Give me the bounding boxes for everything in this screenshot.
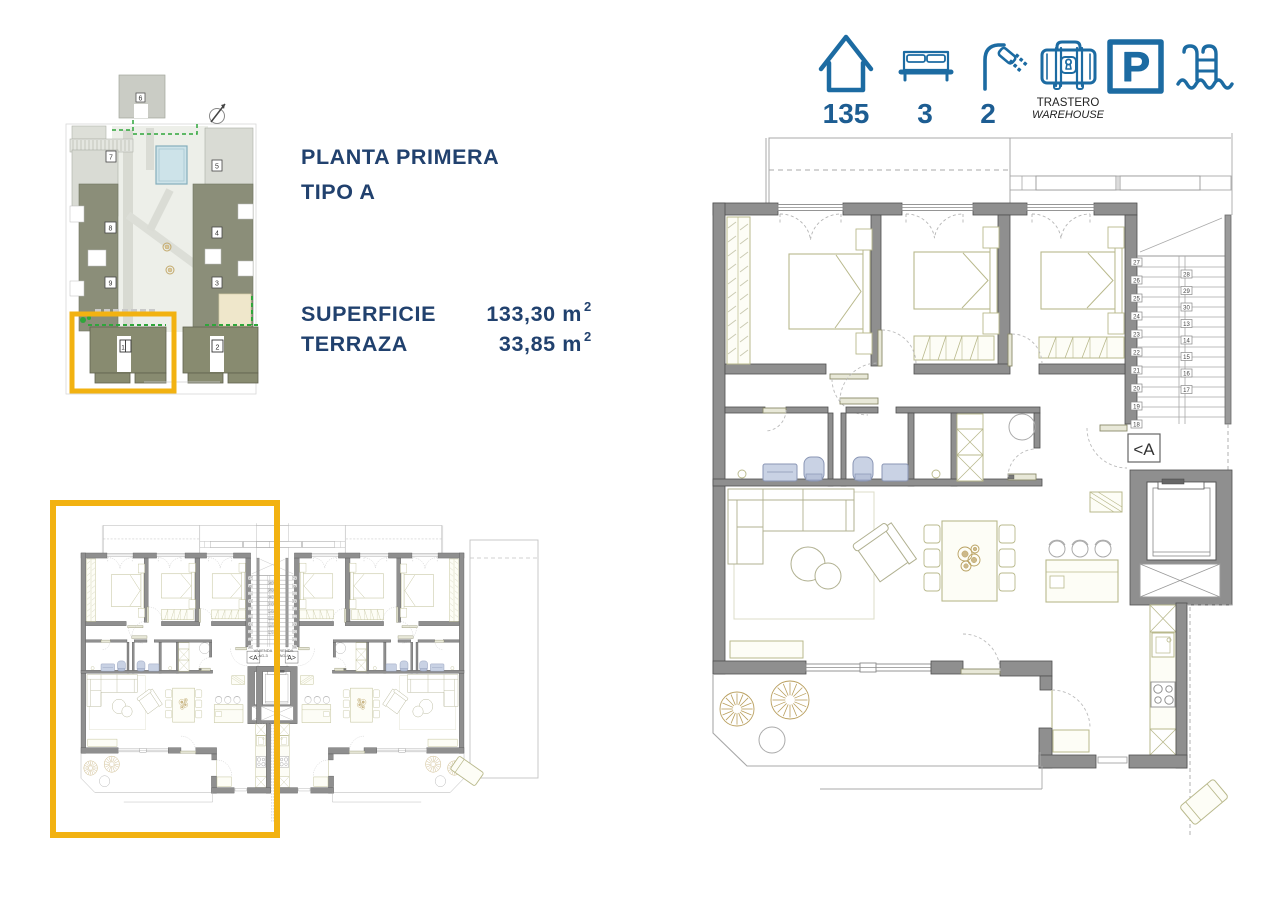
- svg-text:2: 2: [216, 345, 220, 352]
- svg-text:AG-3: AG-3: [258, 653, 268, 658]
- svg-text:6: 6: [139, 96, 143, 103]
- svg-text:33,85 m: 33,85 m: [499, 332, 582, 356]
- svg-text:13: 13: [1183, 322, 1190, 328]
- svg-text:PLANTA PRIMERA: PLANTA PRIMERA: [301, 145, 499, 169]
- svg-text:17: 17: [1183, 388, 1190, 394]
- svg-text:135: 135: [823, 98, 870, 129]
- svg-text:26: 26: [1133, 279, 1140, 285]
- svg-text:22: 22: [1133, 351, 1140, 357]
- svg-text:SUPERFICIE: SUPERFICIE: [301, 302, 436, 326]
- svg-text:29: 29: [1183, 289, 1190, 295]
- svg-text:24: 24: [1133, 315, 1140, 321]
- svg-text:23: 23: [1133, 333, 1140, 339]
- svg-text:2: 2: [584, 299, 592, 314]
- svg-text:19: 19: [1133, 405, 1140, 411]
- svg-text:20: 20: [1133, 387, 1140, 393]
- svg-text:21: 21: [1133, 369, 1140, 375]
- svg-text:AG-4: AG-4: [279, 653, 289, 658]
- svg-text:30: 30: [1183, 306, 1190, 312]
- svg-text:27: 27: [1133, 261, 1140, 267]
- svg-text:3: 3: [917, 98, 933, 129]
- svg-text:16: 16: [1183, 372, 1190, 378]
- svg-text:2: 2: [584, 329, 592, 344]
- svg-text:9: 9: [109, 281, 113, 288]
- svg-text:14: 14: [1183, 339, 1190, 345]
- svg-text:4: 4: [215, 231, 219, 238]
- svg-text:<A: <A: [1133, 440, 1155, 459]
- svg-text:28: 28: [1183, 273, 1190, 279]
- svg-text:15: 15: [1183, 355, 1190, 361]
- svg-text:7: 7: [109, 155, 113, 162]
- svg-text:TERRAZA: TERRAZA: [301, 332, 408, 356]
- svg-text:25: 25: [1133, 297, 1140, 303]
- svg-text:WAREHOUSE: WAREHOUSE: [1032, 109, 1105, 121]
- svg-text:TIPO A: TIPO A: [301, 180, 375, 204]
- svg-text:18: 18: [1133, 423, 1140, 429]
- svg-text:TRASTERO: TRASTERO: [1037, 97, 1100, 109]
- svg-text:133,30 m: 133,30 m: [486, 302, 582, 326]
- svg-text:8: 8: [109, 226, 113, 233]
- svg-text:2: 2: [980, 98, 996, 129]
- svg-text:3: 3: [215, 281, 219, 288]
- svg-text:P: P: [1122, 43, 1150, 90]
- svg-text:5: 5: [215, 164, 219, 171]
